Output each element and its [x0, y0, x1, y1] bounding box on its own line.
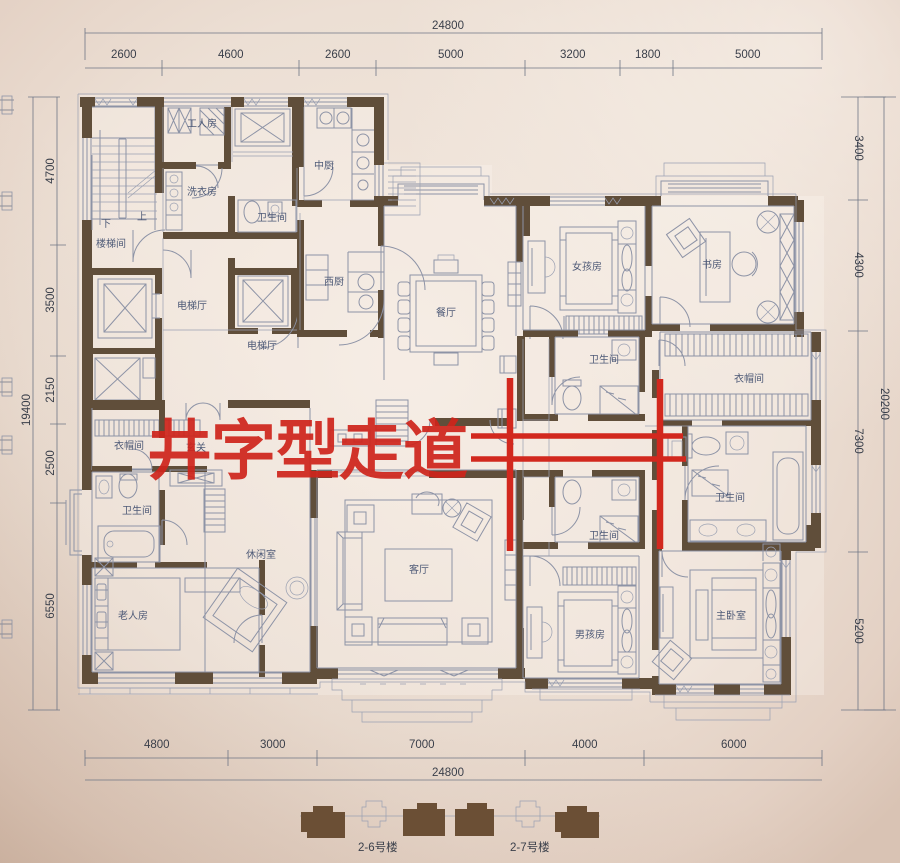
svg-text:24800: 24800	[432, 20, 464, 32]
svg-text:2500: 2500	[45, 450, 57, 476]
svg-text:上: 上	[137, 211, 147, 223]
svg-text:3500: 3500	[45, 287, 57, 313]
svg-text:7000: 7000	[409, 739, 435, 751]
svg-text:女孩房: 女孩房	[572, 260, 602, 273]
svg-text:4700: 4700	[45, 158, 57, 184]
svg-text:卫生间: 卫生间	[589, 353, 619, 366]
svg-text:老人房: 老人房	[118, 609, 148, 622]
svg-text:5000: 5000	[735, 49, 761, 61]
svg-text:2600: 2600	[325, 49, 351, 61]
svg-text:4600: 4600	[218, 49, 244, 61]
svg-text:下: 下	[101, 219, 111, 230]
svg-text:休闲室: 休闲室	[246, 548, 276, 561]
svg-text:男孩房: 男孩房	[575, 628, 605, 641]
svg-text:工人房: 工人房	[187, 117, 217, 130]
svg-text:卫生间: 卫生间	[715, 491, 745, 504]
svg-text:4000: 4000	[572, 739, 598, 751]
svg-text:西厨: 西厨	[324, 276, 344, 288]
svg-text:2-6号楼: 2-6号楼	[358, 840, 398, 854]
svg-text:24800: 24800	[432, 767, 464, 779]
svg-text:1800: 1800	[635, 49, 661, 61]
svg-text:卫生间: 卫生间	[257, 211, 287, 224]
svg-text:19400: 19400	[21, 394, 33, 426]
svg-text:20200: 20200	[878, 388, 890, 420]
svg-text:主卧室: 主卧室	[716, 609, 746, 622]
svg-text:电梯厅: 电梯厅	[177, 299, 207, 312]
svg-text:中厨: 中厨	[314, 159, 334, 172]
svg-text:楼梯间: 楼梯间	[96, 237, 126, 250]
svg-text:5000: 5000	[438, 49, 464, 61]
svg-text:井字型走道: 井字型走道	[147, 414, 468, 487]
svg-text:洗衣房: 洗衣房	[187, 185, 217, 198]
svg-text:5200: 5200	[852, 618, 864, 644]
svg-text:衣帽间: 衣帽间	[734, 372, 764, 385]
svg-text:衣帽间: 衣帽间	[114, 439, 144, 452]
svg-text:客厅: 客厅	[409, 563, 429, 576]
svg-text:卫生间: 卫生间	[589, 529, 619, 542]
svg-text:3400: 3400	[852, 135, 864, 161]
svg-text:2150: 2150	[45, 377, 57, 403]
svg-text:餐厅: 餐厅	[436, 306, 456, 319]
svg-text:4800: 4800	[144, 739, 170, 751]
svg-text:3000: 3000	[260, 739, 286, 751]
svg-text:6550: 6550	[45, 593, 57, 619]
svg-text:书房: 书房	[702, 258, 722, 271]
svg-text:2600: 2600	[111, 49, 137, 61]
svg-text:卫生间: 卫生间	[122, 504, 152, 517]
svg-text:3200: 3200	[560, 49, 586, 61]
svg-text:4300: 4300	[852, 252, 864, 278]
svg-text:电梯厅: 电梯厅	[247, 339, 277, 352]
svg-text:6000: 6000	[721, 739, 747, 751]
svg-text:2-7号楼: 2-7号楼	[510, 840, 550, 854]
svg-text:7300: 7300	[852, 428, 864, 454]
